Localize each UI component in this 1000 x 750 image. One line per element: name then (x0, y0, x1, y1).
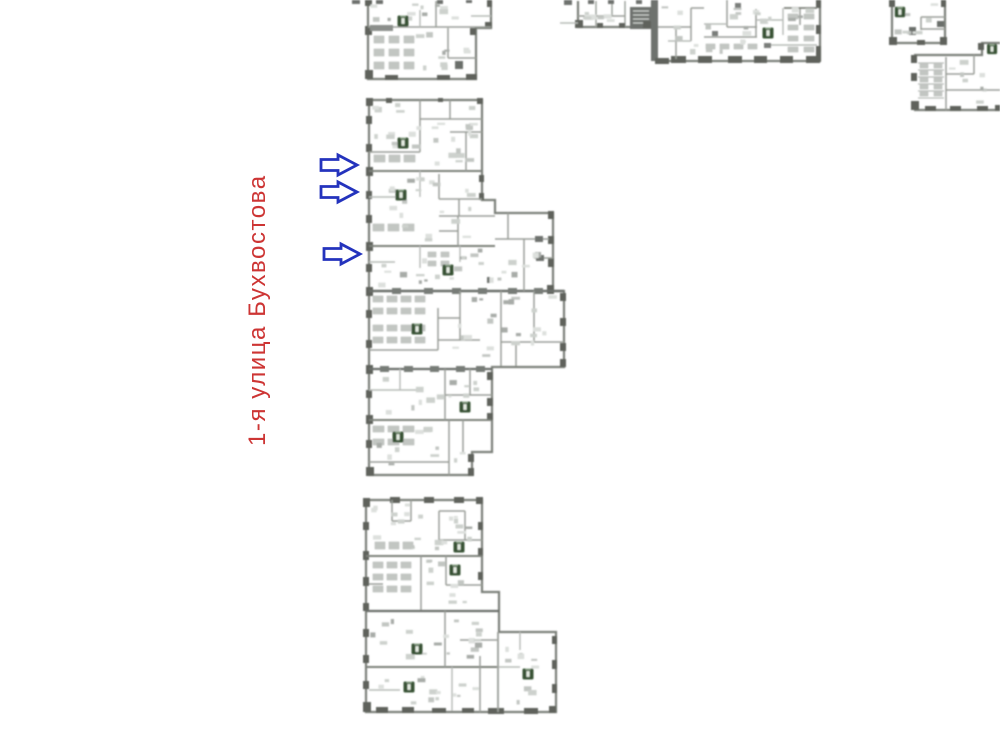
svg-text:1-я улица Бухвостова: 1-я улица Бухвостова (244, 174, 271, 446)
